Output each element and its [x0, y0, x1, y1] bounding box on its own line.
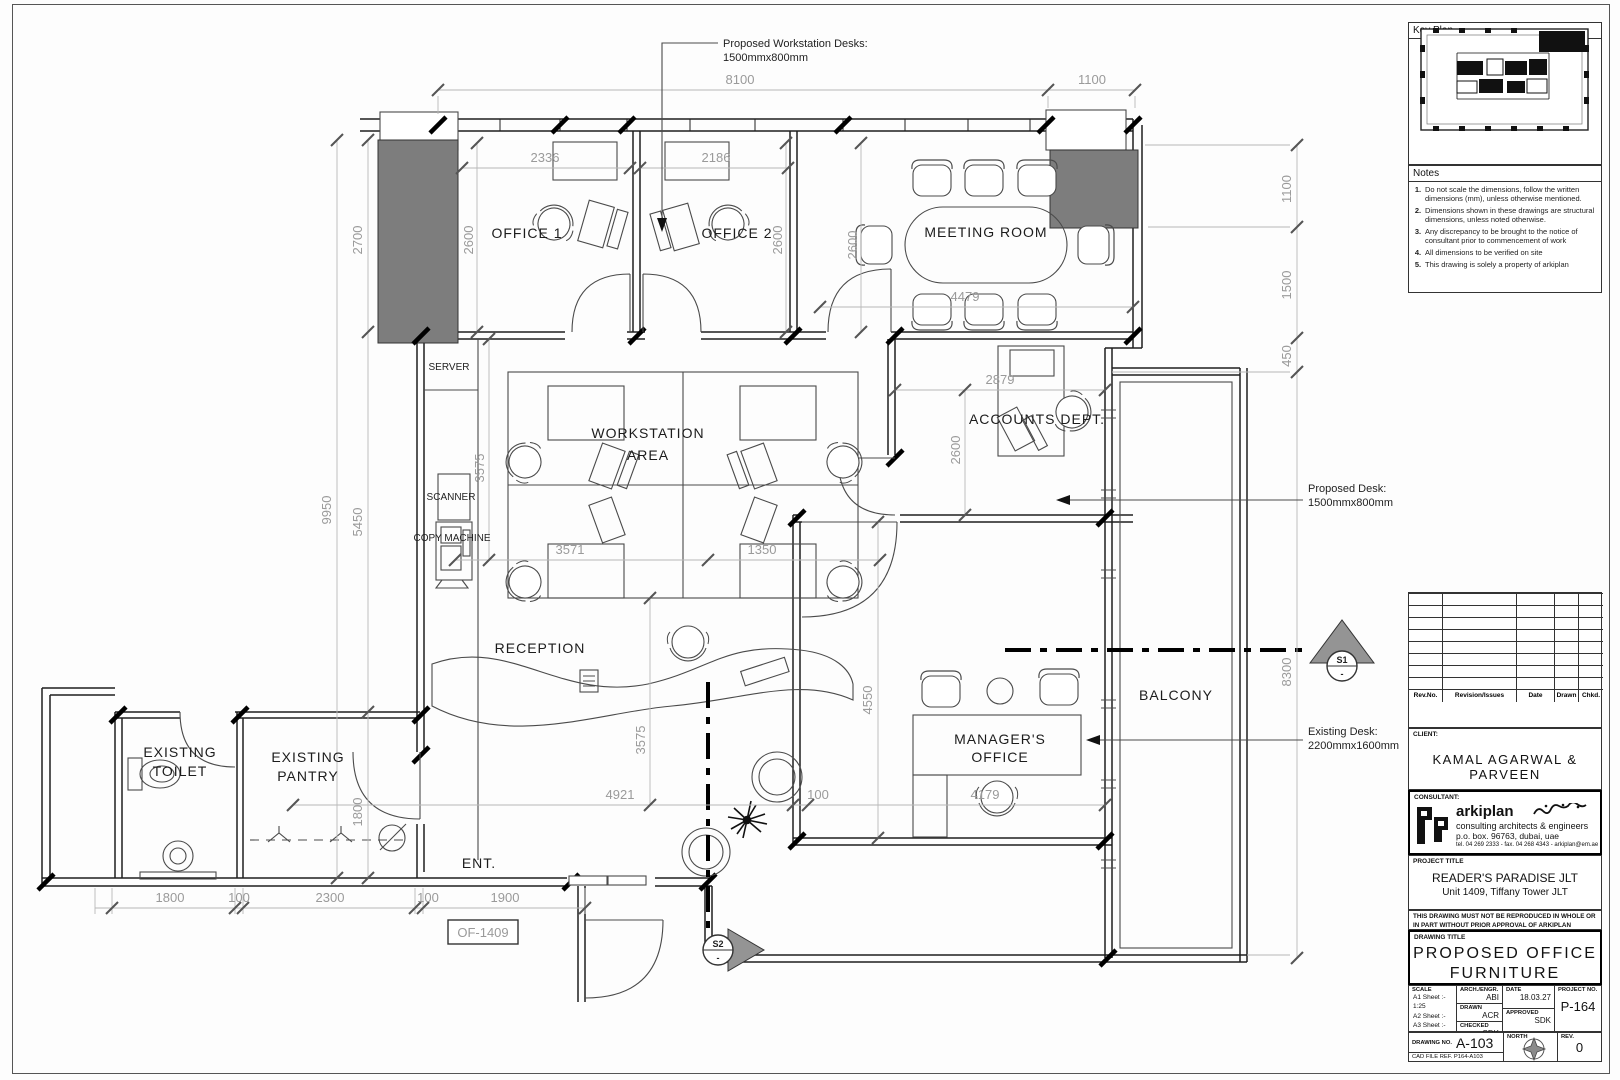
arch-value: ABI: [1457, 993, 1502, 1003]
rev-header-drawn: Drawn: [1555, 689, 1579, 702]
dim-2600-office1: 2600: [461, 226, 476, 255]
bottom-strip: DRAWING NO. A-103 CAD FILE REF. P164-A10…: [1408, 1032, 1602, 1062]
note-text: Dimensions shown in these drawings are s…: [1425, 206, 1597, 224]
disclaimer-box: THIS DRAWING MUST NOT BE REPRODUCED IN W…: [1408, 910, 1602, 930]
dim-3575-workstation: 3575: [472, 454, 487, 483]
label-toilet-1: EXISTING: [143, 744, 216, 760]
north-compass-icon: [1521, 1036, 1547, 1062]
date-label: DATE: [1503, 986, 1554, 993]
dim-2186: 2186: [702, 150, 731, 165]
door-arcs: [180, 269, 897, 998]
project-title-box: PROJECT TITLE READER'S PARADISE JLT Unit…: [1408, 855, 1602, 910]
accounts-desk: [997, 346, 1098, 456]
project-no-label: PROJECT NO.: [1555, 986, 1601, 993]
dim-4921: 4921: [606, 787, 635, 802]
dim-8300: 8300: [1279, 658, 1294, 687]
drawing-title-line1: PROPOSED OFFICE: [1413, 945, 1597, 962]
dim-1500-right: 1500: [1279, 271, 1294, 300]
drawn-value: ACR: [1457, 1011, 1502, 1021]
note-number: 5.: [1411, 260, 1425, 269]
note-number: 2.: [1411, 206, 1425, 224]
annotation-workstation-desks-2: 1500mmx800mm: [723, 52, 808, 64]
note-text: Do not scale the dimensions, follow the …: [1425, 185, 1597, 203]
dim-5450: 5450: [350, 508, 365, 537]
dim-2700: 2700: [350, 226, 365, 255]
label-workstation-2: AREA: [627, 447, 669, 463]
label-workstation-1: WORKSTATION: [591, 425, 704, 441]
note-item: 3.Any discrepancy to be brought to the n…: [1411, 227, 1597, 245]
drawing-no-value: A-103: [1456, 1035, 1493, 1051]
label-reception: RECEPTION: [495, 640, 586, 656]
disclaimer-line1: THIS DRAWING MUST NOT BE REPRODUCED IN W…: [1413, 913, 1596, 920]
arkiplan-logo-icon: [1414, 803, 1450, 847]
lounge-chair-inner: [759, 759, 795, 795]
date-cell: DATE 18.03.27 APPROVED SDK: [1503, 986, 1555, 1031]
rev-header-no: Rev.No.: [1409, 689, 1443, 702]
drawn-label: DRAWN: [1457, 1004, 1502, 1011]
scale-cell: SCALE A1 Sheet :- 1:25 A2 Sheet :- A3 Sh…: [1409, 986, 1457, 1031]
dim-100-b2: 100: [417, 890, 439, 905]
note-item: 1.Do not scale the dimensions, follow th…: [1411, 185, 1597, 203]
pantry-counter: [250, 824, 410, 851]
note-item: 2.Dimensions shown in these drawings are…: [1411, 206, 1597, 224]
s1-marker-sub: -: [1341, 669, 1344, 679]
approved-label: APPROVED: [1503, 1009, 1554, 1016]
project-name: READER'S PARADISE JLT: [1409, 871, 1601, 885]
floor-plan: S2 - S1 -: [0, 0, 1620, 1080]
unit-tag: OF-1409: [457, 925, 508, 940]
disclaimer-line2: IN PART WITHOUT PRIOR APPROVAL OF ARKIPL…: [1413, 922, 1571, 929]
staff-cell: ARCH./ENGR. ABI DRAWN ACR CHECKED SDK: [1457, 986, 1503, 1031]
label-meeting-room: MEETING ROOM: [924, 224, 1047, 240]
dim-3575-reception: 3575: [633, 726, 648, 755]
consultant-tagline: consulting architects & engineers: [1456, 821, 1598, 831]
note-item: 4.All dimensions to be verified on site: [1411, 248, 1597, 257]
arabic-script-icon: [1532, 803, 1588, 819]
dim-2600-meeting: 2600: [845, 231, 860, 260]
note-text: Any discrepancy to be brought to the not…: [1425, 227, 1597, 245]
dim-2600-accounts: 2600: [948, 436, 963, 465]
drawing-title-box: DRAWING TITLE PROPOSED OFFICE FURNITURE …: [1408, 930, 1602, 985]
corner-column: [1050, 150, 1138, 228]
dim-1800-bottom: 1800: [156, 890, 185, 905]
dim-4479: 4479: [951, 289, 980, 304]
consultant-name: arkiplan: [1456, 803, 1514, 820]
s2-marker-label: S2: [712, 939, 723, 949]
s1-marker-label: S1: [1336, 655, 1347, 665]
scale-a2: A2 Sheet :-: [1409, 1012, 1456, 1021]
notes-box: Notes 1.Do not scale the dimensions, fol…: [1408, 165, 1602, 293]
dim-9950: 9950: [319, 496, 334, 525]
rev-header-date: Date: [1517, 689, 1555, 702]
label-copy-machine: COPY MACHINE: [413, 533, 490, 544]
drawing-sheet: S2 - S1 -: [0, 0, 1620, 1080]
label-toilet-2: TOILET: [153, 763, 208, 779]
rev-header-issue: Revision/Issues: [1443, 689, 1517, 702]
annotation-proposed-desk-2: 1500mmx800mm: [1308, 497, 1393, 509]
dim-8100: 8100: [726, 72, 755, 87]
note-number: 3.: [1411, 227, 1425, 245]
section-markers: S2 - S1 -: [703, 620, 1374, 971]
workstation-cluster: [500, 372, 868, 608]
client-name: KAMAL AGARWAL & PARVEEN: [1409, 752, 1601, 782]
label-server: SERVER: [429, 362, 470, 373]
dim-450-right: 450: [1279, 345, 1294, 367]
annotation-existing-desk-2: 2200mmx1600mm: [1308, 740, 1399, 752]
label-accounts: ACCOUNTS DEPT.: [969, 411, 1105, 427]
rev-cell: REV. 0: [1558, 1033, 1601, 1061]
north-cell: NORTH: [1504, 1033, 1558, 1061]
scale-label: SCALE: [1409, 986, 1456, 993]
window-box-top-right: [1046, 110, 1126, 150]
annotation-existing-desk-1: Existing Desk:: [1308, 726, 1378, 738]
key-plan-thumbnail: [1409, 23, 1601, 141]
note-text: This drawing is solely a property of ark…: [1425, 260, 1569, 269]
annotation-proposed-desk-1: Proposed Desk:: [1308, 483, 1386, 495]
project-no-cell: PROJECT NO. P-164: [1555, 986, 1601, 1031]
dim-4179: 4179: [971, 787, 1000, 802]
copy-machine-box: [436, 522, 472, 588]
shaft-column: [378, 140, 458, 343]
label-pantry-1: EXISTING: [271, 749, 344, 765]
dim-2300: 2300: [316, 890, 345, 905]
label-balcony: BALCONY: [1139, 687, 1213, 703]
rev-header-chkd: Chkd.: [1579, 689, 1603, 702]
approved-value: SDK: [1503, 1016, 1554, 1026]
drawing-title-label: DRAWING TITLE: [1410, 932, 1600, 941]
label-manager-2: OFFICE: [971, 749, 1028, 765]
scale-a1: A1 Sheet :- 1:25: [1409, 993, 1456, 1012]
label-office2: OFFICE 2: [701, 225, 772, 241]
note-number: 4.: [1411, 248, 1425, 257]
label-scanner: SCANNER: [427, 492, 476, 503]
label-office1: OFFICE 1: [491, 225, 562, 241]
consultant-label: CONSULTANT:: [1410, 792, 1600, 801]
plant-icon: [728, 801, 767, 838]
drawing-no-cell: DRAWING NO. A-103 CAD FILE REF. P164-A10…: [1409, 1033, 1504, 1061]
notes-title: Notes: [1409, 166, 1601, 182]
dim-1100-top: 1100: [1078, 72, 1106, 87]
balcony-rail: [1120, 382, 1232, 948]
cad-file-ref: CAD FILE REF. P164-A103: [1409, 1052, 1503, 1061]
dim-100-mid: 100: [807, 787, 829, 802]
dim-2879: 2879: [986, 372, 1015, 387]
checked-label: CHECKED: [1457, 1022, 1502, 1029]
note-item: 5.This drawing is solely a property of a…: [1411, 260, 1597, 269]
rev-value: 0: [1558, 1040, 1601, 1055]
dim-100-b1: 100: [228, 890, 250, 905]
note-number: 1.: [1411, 185, 1425, 203]
annotation-workstation-desks-1: Proposed Workstation Desks:: [723, 38, 868, 50]
date-value: 18.03.27: [1503, 993, 1554, 1003]
dim-4550: 4550: [860, 686, 875, 715]
client-label: CLIENT:: [1409, 729, 1601, 738]
client-box: CLIENT: KAMAL AGARWAL & PARVEEN: [1408, 728, 1602, 790]
project-title-label: PROJECT TITLE: [1409, 856, 1601, 865]
rev-label: REV.: [1558, 1033, 1601, 1040]
consultant-address: p.o. box. 96763, dubai, uae: [1456, 831, 1598, 841]
arch-label: ARCH./ENGR.: [1457, 986, 1502, 993]
revision-table: Rev.No. Revision/Issues Date Drawn Chkd.: [1408, 592, 1602, 728]
label-entrance: ENT.: [462, 855, 496, 871]
dim-3571: 3571: [556, 542, 585, 557]
label-pantry-2: PANTRY: [277, 768, 339, 784]
revision-rows: Rev.No. Revision/Issues Date Drawn Chkd.: [1409, 593, 1601, 702]
key-plan-box: Key Plan: [1408, 22, 1602, 165]
dim-1350: 1350: [748, 542, 777, 557]
dim-1900: 1900: [491, 890, 520, 905]
dim-2336: 2336: [531, 150, 560, 165]
project-no-value: P-164: [1555, 999, 1601, 1014]
note-text: All dimensions to be verified on site: [1425, 248, 1543, 257]
label-manager-1: MANAGER'S: [954, 731, 1046, 747]
dim-1100-right: 1100: [1279, 175, 1294, 203]
drawing-no-label: DRAWING NO.: [1409, 1040, 1452, 1046]
meta-table: SCALE A1 Sheet :- 1:25 A2 Sheet :- A3 Sh…: [1408, 985, 1602, 1032]
consultant-box: CONSULTANT: arkiplan consulting architec…: [1408, 790, 1602, 855]
s2-marker-sub: -: [717, 953, 720, 963]
consultant-contact: tel. 04 269 2333 - fax. 04 268 4343 - ar…: [1456, 842, 1598, 850]
dim-1800-pantry: 1800: [350, 798, 365, 827]
project-unit: Unit 1409, Tiffany Tower JLT: [1409, 887, 1601, 898]
furniture: [128, 142, 1114, 879]
